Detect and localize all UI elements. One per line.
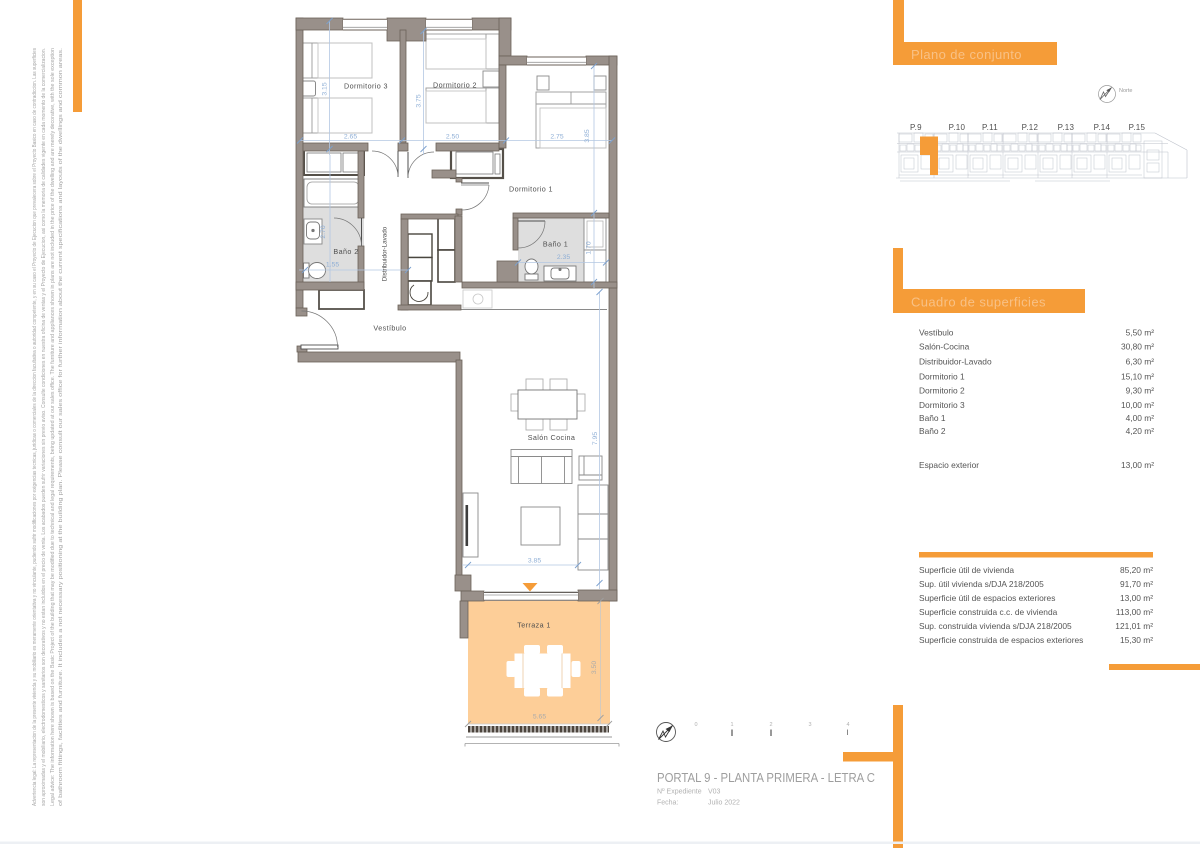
svg-text:Advertencia legal: La represen: Advertencia legal: La representacion de … [32,48,38,806]
svg-text:13,00 m²: 13,00 m² [1120,593,1153,603]
svg-text:Superficie construida de espac: Superficie construida de espacios exteri… [919,635,1083,645]
svg-text:P.14: P.14 [1094,123,1111,132]
svg-text:10,00 m²: 10,00 m² [1121,400,1154,410]
svg-text:Sup. útil vivienda s/DJA 218/2: Sup. útil vivienda s/DJA 218/2005 [919,579,1044,589]
svg-text:Vestíbulo: Vestíbulo [373,324,406,333]
svg-text:113,00 m²: 113,00 m² [1116,607,1153,617]
svg-text:Norte: Norte [1119,88,1132,94]
svg-text:5.65: 5.65 [533,714,546,721]
svg-text:P.11: P.11 [982,123,998,132]
svg-text:Superficie útil de espacios ex: Superficie útil de espacios exteriores [919,593,1055,603]
svg-text:1.70: 1.70 [586,241,593,254]
svg-text:4,00 m²: 4,00 m² [1126,413,1155,423]
svg-text:3.50: 3.50 [591,661,598,674]
svg-text:3.85: 3.85 [584,129,591,142]
svg-text:3: 3 [808,722,811,728]
svg-text:6,30 m²: 6,30 m² [1126,357,1155,367]
svg-text:Dormitorio 1: Dormitorio 1 [919,372,965,382]
svg-text:Baño 1: Baño 1 [543,240,568,249]
svg-text:Cuadro de superficies: Cuadro de superficies [911,295,1046,310]
svg-text:0: 0 [694,722,697,728]
svg-text:Dormitorio 3: Dormitorio 3 [344,82,388,91]
svg-text:Distribuidor-Lavado: Distribuidor-Lavado [382,226,389,281]
svg-text:2.65: 2.65 [344,134,357,141]
svg-text:Dormitorio 1: Dormitorio 1 [509,185,553,194]
svg-text:5,50 m²: 5,50 m² [1126,327,1155,337]
svg-text:1: 1 [730,722,733,728]
svg-text:P.10: P.10 [949,123,966,132]
svg-text:V03: V03 [708,789,721,796]
svg-text:Nº Expediente: Nº Expediente [657,789,702,796]
svg-text:121,01 m²: 121,01 m² [1115,621,1153,631]
svg-text:15,30 m²: 15,30 m² [1120,635,1153,645]
svg-text:Legal advice: The information: Legal advice: The information here shown… [50,48,56,806]
svg-text:3.75: 3.75 [416,94,423,107]
svg-text:9,30 m²: 9,30 m² [1126,386,1155,396]
svg-text:85,20 m²: 85,20 m² [1120,565,1153,575]
svg-text:Distribuidor-Lavado: Distribuidor-Lavado [919,357,992,367]
svg-text:3.15: 3.15 [322,82,329,95]
svg-text:Salón-Cocina: Salón-Cocina [919,341,970,351]
svg-text:P.13: P.13 [1058,123,1075,132]
svg-text:Dormitorio 2: Dormitorio 2 [919,386,965,396]
svg-text:PORTAL 9 - PLANTA PRIMERA - LE: PORTAL 9 - PLANTA PRIMERA - LETRA C [657,770,875,785]
svg-text:91,70 m²: 91,70 m² [1120,579,1153,589]
svg-text:Vestíbulo: Vestíbulo [919,327,954,337]
svg-text:3.85: 3.85 [528,558,541,565]
svg-text:Fecha:: Fecha: [657,800,678,807]
svg-text:Superficie útil de vivienda: Superficie útil de vivienda [919,565,1014,575]
svg-text:4: 4 [846,722,849,728]
svg-text:7.95: 7.95 [592,432,599,445]
svg-text:Sup. construida vivienda s/DJA: Sup. construida vivienda s/DJA 218/2005 [919,621,1072,631]
svg-text:Espacio exterior: Espacio exterior [919,460,979,470]
svg-text:2.50: 2.50 [446,134,459,141]
svg-text:2: 2 [769,722,772,728]
svg-text:Superficie construida c.c. de: Superficie construida c.c. de vivienda [919,607,1058,617]
svg-text:2.75: 2.75 [550,134,563,141]
svg-text:4,20 m²: 4,20 m² [1126,426,1155,436]
svg-text:Terraza 1: Terraza 1 [517,621,551,630]
svg-text:1.55: 1.55 [326,262,339,269]
svg-text:P.15: P.15 [1129,123,1146,132]
svg-text:Baño 2: Baño 2 [919,426,946,436]
svg-text:13,00 m²: 13,00 m² [1121,460,1154,470]
svg-text:2.70: 2.70 [320,225,327,238]
svg-text:Dormitorio 2: Dormitorio 2 [433,81,477,90]
svg-text:15,10 m²: 15,10 m² [1121,372,1154,382]
svg-text:P.12: P.12 [1022,123,1039,132]
svg-text:Dormitorio 3: Dormitorio 3 [919,400,965,410]
svg-text:of bathroom fittings, faciliti: of bathroom fittings, facilities and fur… [58,48,64,806]
svg-text:Baño 1: Baño 1 [919,413,946,423]
svg-text:30,80 m²: 30,80 m² [1121,341,1154,351]
svg-text:2.35: 2.35 [557,254,570,261]
svg-text:son aproximadas y el mobiliari: son aproximadas y el mobiliario, electro… [41,48,47,806]
svg-text:Plano de conjunto: Plano de conjunto [911,47,1022,62]
svg-text:Baño 2: Baño 2 [333,247,358,256]
svg-text:Julio 2022: Julio 2022 [708,800,740,807]
svg-text:P.9: P.9 [910,123,922,132]
svg-text:Salón Cocina: Salón Cocina [528,433,576,442]
